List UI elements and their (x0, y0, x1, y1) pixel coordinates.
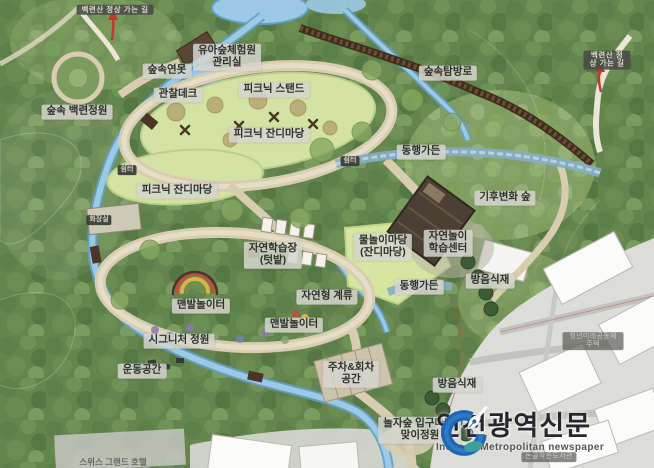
pen-nib-icon (436, 404, 492, 460)
park-plan-map (0, 0, 654, 468)
newspaper-logo: 인천광역신문 Incheon Metropolitan newspaper (436, 404, 604, 453)
park-master-plan-image: 백련산 정상 가는 길 백련산 정상 가는 길 유아숲체험원 관리실 숲속연못 … (0, 0, 654, 468)
